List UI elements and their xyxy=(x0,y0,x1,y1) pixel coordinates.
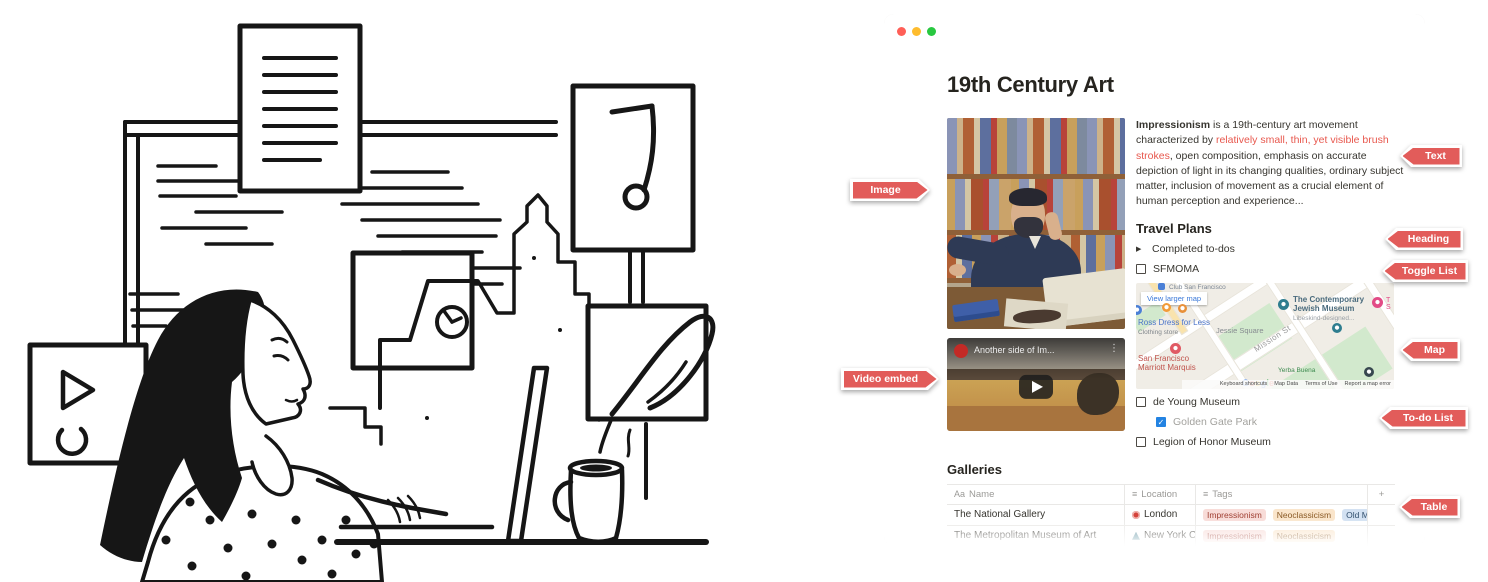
annotation-toggle-list: Toggle List xyxy=(1382,260,1468,282)
checkbox-unchecked[interactable] xyxy=(1136,397,1146,407)
toggle-list-item[interactable]: ▶ Completed to-dos xyxy=(1136,242,1409,256)
map-label-hotel[interactable]: San Francisco Marriott Marquis xyxy=(1138,355,1210,373)
annotation-video-embed: Video embed xyxy=(841,368,939,390)
store-pin-icon[interactable] xyxy=(1178,304,1187,313)
table-cell-tags[interactable]: Impressionism Neoclassicism xyxy=(1196,526,1368,547)
map-embed-block[interactable]: Club San Francisco View larger map The C… xyxy=(1136,283,1394,389)
checkbox-unchecked[interactable] xyxy=(1136,437,1146,447)
text-property-icon: Aa xyxy=(954,489,965,499)
table-cell-location[interactable]: New York City xyxy=(1125,526,1196,547)
todo-item[interactable]: SFMOMA xyxy=(1136,262,1409,276)
ferris-wheel-icon xyxy=(1132,511,1140,519)
paragraph-block: Impressionism is a 19th-century art move… xyxy=(1136,118,1409,210)
face xyxy=(243,300,310,424)
tag-chip: Neoclassicism xyxy=(1273,530,1335,542)
notion-window: 19th Century Art xyxy=(884,14,1425,546)
paragraph-bold: Impressionism xyxy=(1136,119,1210,131)
store-pin-icon[interactable] xyxy=(1162,303,1171,312)
tag-chip: Old Masters xyxy=(1342,509,1368,521)
tag-chip: Impressionism xyxy=(1203,530,1266,542)
checkbox-checked[interactable]: ✓ xyxy=(1156,417,1166,427)
table-cell-location[interactable]: London xyxy=(1125,505,1196,526)
galleries-heading: Galleries xyxy=(947,462,1409,477)
todo-item[interactable]: Legion of Honor Museum xyxy=(1136,435,1409,449)
annotation-heading: Heading xyxy=(1385,228,1463,250)
museum-pin-icon[interactable] xyxy=(1278,299,1289,310)
map-label-ross[interactable]: Ross Dress for Less xyxy=(1138,319,1210,328)
map-label-park: Yerba Buena xyxy=(1278,367,1315,374)
column-header-tags[interactable]: ≡ Tags xyxy=(1196,485,1368,505)
map-attribution: Keyboard shortcuts Map Data Terms of Use… xyxy=(1182,380,1394,389)
document-frame xyxy=(240,26,360,191)
text-property-icon: ≡ xyxy=(1132,489,1137,499)
plant-frame xyxy=(588,306,713,452)
todo-item-checked[interactable]: ✓ Golden Gate Park xyxy=(1156,415,1409,429)
hotel-pin-icon[interactable] xyxy=(1170,343,1181,354)
video-embed-block[interactable]: Another side of Im... ⋮ xyxy=(947,338,1125,431)
annotation-todo-list: To-do List xyxy=(1379,407,1468,429)
galleries-table: Aa Name ≡ Location ≡ Tags + The National… xyxy=(947,484,1395,547)
map-label-museum[interactable]: The Contemporary Jewish Museum xyxy=(1293,296,1377,314)
table-cell-name[interactable]: The Metropolitan Museum of Art xyxy=(947,526,1125,547)
statue-of-liberty-icon xyxy=(1132,532,1140,540)
painting-bookshelf-row xyxy=(947,118,1125,174)
poi-pin-icon[interactable] xyxy=(1364,367,1374,377)
zoom-window-button[interactable] xyxy=(927,27,936,36)
image-block[interactable] xyxy=(947,118,1125,329)
column-header-name[interactable]: Aa Name xyxy=(947,485,1125,505)
tag-chip: Neoclassicism xyxy=(1273,509,1335,521)
add-column-button[interactable]: + xyxy=(1368,485,1395,505)
coffee-mug xyxy=(555,430,630,542)
kebab-menu-icon[interactable]: ⋮ xyxy=(1109,343,1119,354)
table-cell-name[interactable]: The National Gallery xyxy=(947,505,1125,526)
close-window-button[interactable] xyxy=(897,27,906,36)
laptop-screen xyxy=(508,368,547,541)
window-controls xyxy=(897,27,936,36)
steam xyxy=(628,430,630,456)
tag-chip: Impressionism xyxy=(1203,509,1266,521)
annotation-text: Text xyxy=(1400,145,1462,167)
map-label-square: Jessie Square xyxy=(1216,327,1264,335)
checkbox-unchecked[interactable] xyxy=(1136,264,1146,274)
column-header-location[interactable]: ≡ Location xyxy=(1125,485,1196,505)
map-label-partial: T S xyxy=(1386,297,1394,312)
store-pin-icon[interactable] xyxy=(1372,297,1383,308)
minimize-window-button[interactable] xyxy=(912,27,921,36)
annotation-map: Map xyxy=(1400,339,1460,361)
play-button[interactable] xyxy=(1019,374,1053,398)
travel-plans-heading: Travel Plans xyxy=(1136,221,1409,236)
annotation-table: Table xyxy=(1399,496,1460,518)
chart-frame xyxy=(353,253,477,408)
map-label-club: Club San Francisco xyxy=(1169,284,1226,291)
video-title: Another side of Im... xyxy=(974,345,1055,355)
channel-avatar[interactable] xyxy=(954,344,968,358)
page-title: 19th Century Art xyxy=(947,72,1114,98)
multiselect-property-icon: ≡ xyxy=(1203,489,1208,499)
toggle-label: Completed to-dos xyxy=(1152,243,1235,255)
music-note-frame xyxy=(573,86,693,250)
museum-pin-icon[interactable] xyxy=(1332,323,1342,333)
map-poi-icon xyxy=(1158,283,1165,290)
table-cell-tags[interactable]: Impressionism Neoclassicism Old Masters xyxy=(1196,505,1368,526)
toggle-triangle-icon[interactable]: ▶ xyxy=(1136,245,1145,253)
annotation-image: Image xyxy=(850,179,930,201)
todo-item[interactable]: de Young Museum xyxy=(1136,395,1409,409)
illustration-woman-at-laptop xyxy=(0,0,860,582)
view-larger-map-link[interactable]: View larger map xyxy=(1141,292,1207,305)
